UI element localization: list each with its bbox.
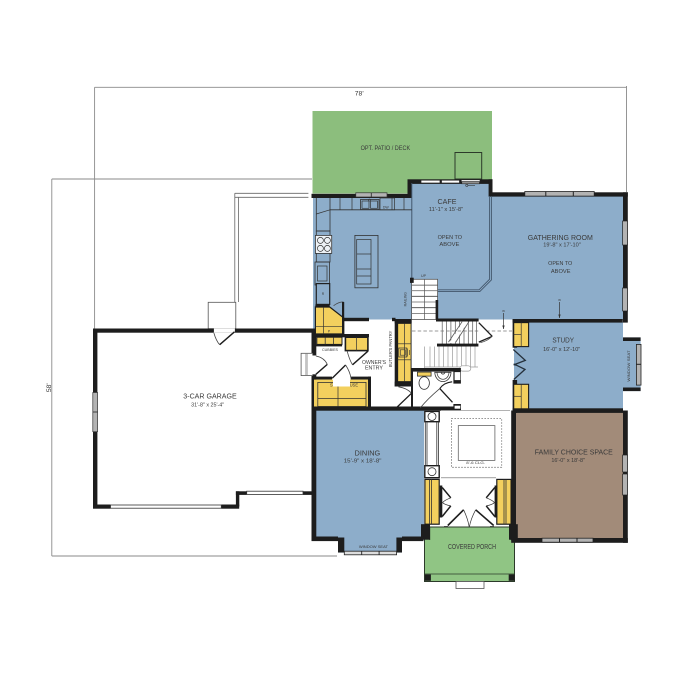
- svg-text:CUBBIES: CUBBIES: [322, 347, 338, 352]
- svg-text:DINING: DINING: [355, 448, 381, 457]
- svg-text:OPT. PATIO / DECK: OPT. PATIO / DECK: [361, 145, 411, 152]
- svg-text:FAMILY CHOICE SPACE: FAMILY CHOICE SPACE: [535, 447, 613, 456]
- svg-text:ABOVE: ABOVE: [551, 269, 571, 275]
- svg-text:78': 78': [355, 91, 364, 98]
- svg-text:ABOVE: ABOVE: [439, 242, 459, 248]
- svg-text:58': 58': [46, 383, 53, 392]
- svg-text:OPEN TO: OPEN TO: [548, 261, 573, 267]
- svg-text:CAFE: CAFE: [438, 197, 457, 206]
- svg-text:ENTRY: ENTRY: [365, 366, 383, 372]
- svg-text:31'-8" x 25'-4": 31'-8" x 25'-4": [191, 403, 224, 409]
- svg-text:UP: UP: [421, 274, 427, 278]
- svg-text:COVERED PORCH: COVERED PORCH: [448, 544, 496, 551]
- svg-text:11'-1" x 15'-8": 11'-1" x 15'-8": [429, 207, 464, 213]
- svg-text:BUTLER'S PANTRY: BUTLER'S PANTRY: [388, 330, 393, 367]
- svg-text:WINDOW SEAT: WINDOW SEAT: [626, 350, 631, 382]
- svg-text:WINDOW SEAT: WINDOW SEAT: [359, 544, 389, 549]
- svg-text:16'-0" x 12'-10": 16'-0" x 12'-10": [543, 347, 580, 353]
- svg-text:19'-8" x 17'-10": 19'-8" x 17'-10": [543, 242, 581, 248]
- svg-text:15'-9" x 18'-8": 15'-9" x 18'-8": [344, 458, 382, 464]
- svg-text:RAILING: RAILING: [404, 292, 408, 307]
- svg-text:16'-0" x 18'-8": 16'-0" x 18'-8": [551, 458, 585, 464]
- svg-text:GATHERING ROOM: GATHERING ROOM: [528, 233, 593, 242]
- svg-text:DW: DW: [383, 206, 390, 210]
- svg-text:W: W: [558, 298, 561, 302]
- svg-text:OPEN TO: OPEN TO: [438, 235, 463, 241]
- svg-text:3-CAR GARAGE: 3-CAR GARAGE: [183, 392, 236, 401]
- svg-text:STUDY: STUDY: [552, 336, 574, 345]
- svg-text:W: W: [502, 309, 505, 313]
- svg-text:8'-6 CLG.: 8'-6 CLG.: [466, 461, 485, 465]
